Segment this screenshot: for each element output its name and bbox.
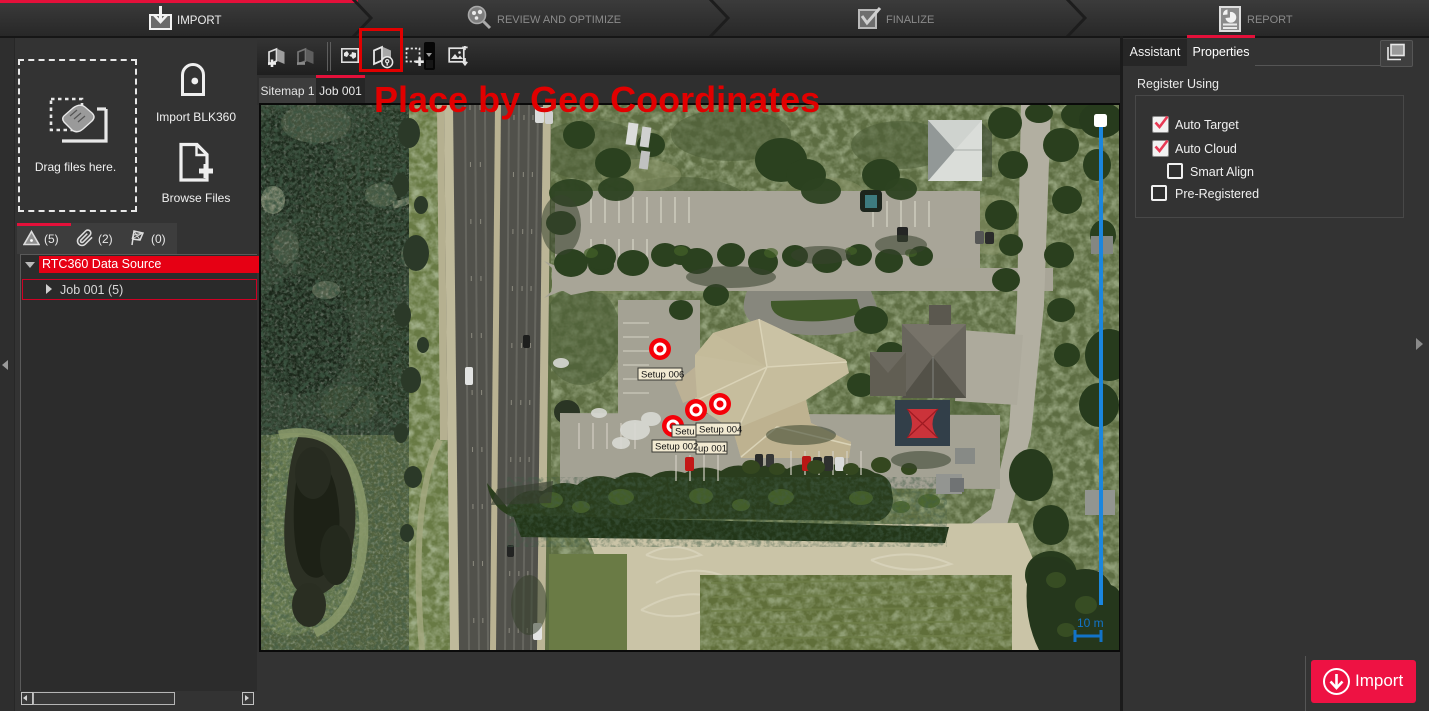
svg-text:Setup 002: Setup 002 [655, 442, 698, 453]
svg-text:Setup 004: Setup 004 [699, 425, 742, 436]
svg-text:10 m: 10 m [1077, 616, 1104, 630]
svg-text:Setu: Setu [675, 427, 695, 438]
svg-text:up 001: up 001 [698, 444, 727, 455]
svg-text:Setup 006: Setup 006 [641, 370, 684, 381]
